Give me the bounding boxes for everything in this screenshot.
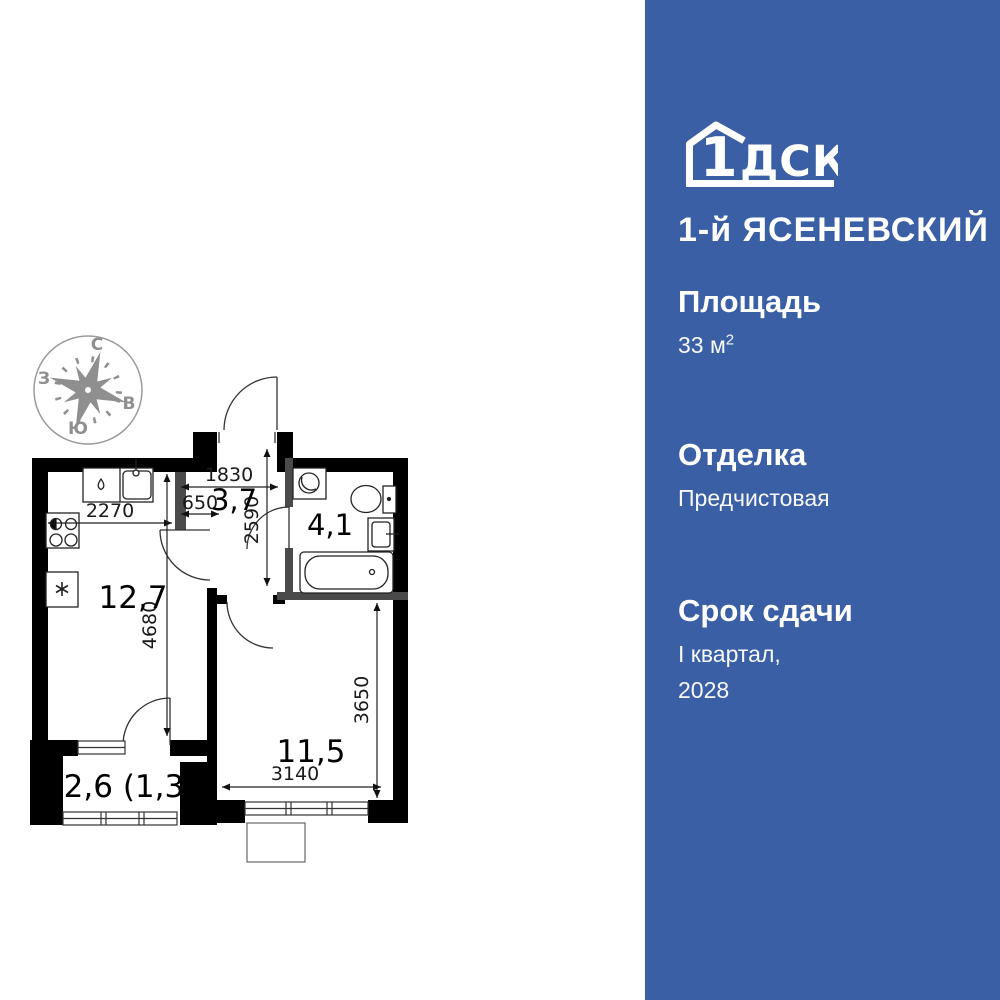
dim-room-depth: 3650 [351, 676, 373, 724]
balcony-top-window [78, 741, 125, 754]
room-label-kitchen-living: 12,7 [98, 580, 167, 616]
project-name: 1-й ЯСЕНЕВСКИЙ [678, 211, 989, 250]
entrance-door [219, 377, 277, 443]
dim-kitchen-width: 2270 [86, 500, 134, 522]
logo-letters: ДСК [740, 137, 838, 187]
fridge-icon [46, 572, 78, 607]
sink-icon [368, 518, 399, 551]
stove-icon [46, 513, 79, 548]
room-label-bedroom: 11,5 [276, 734, 345, 770]
stat-area-label: Площадь [678, 285, 821, 319]
logo-underline [686, 180, 834, 187]
balcony-door [123, 698, 170, 745]
room-label-bathroom: 4,1 [307, 508, 353, 542]
compass-west: З [38, 369, 50, 389]
balcony-glazing [63, 812, 177, 825]
stat-deadline-line1: I квартал, [678, 637, 853, 673]
toilet-icon [351, 486, 396, 514]
room-label-hallway: 3,7 [211, 483, 257, 517]
stat-area: Площадь 33 м2 [678, 285, 821, 364]
info-sidebar: 1 ДСК 1-й ЯСЕНЕВСКИЙ Площадь 33 м2 Отдел… [645, 0, 1000, 1000]
washing-machine-icon [293, 468, 326, 499]
facade-basket [247, 823, 305, 862]
compass-north: С [91, 335, 103, 355]
stat-area-number: 33 м [678, 332, 726, 358]
stat-finishing-label: Отделка [678, 438, 830, 472]
room-door [227, 602, 273, 648]
stat-area-value: 33 м2 [678, 328, 821, 364]
apartment-card: С В Ю З [0, 0, 1000, 1000]
stat-area-sup: 2 [726, 331, 734, 348]
developer-logo: 1 ДСК 1-й ЯСЕНЕВСКИЙ [678, 118, 989, 250]
stat-deadline-line2: 2028 [678, 673, 853, 709]
bathtub-icon [300, 552, 393, 593]
logo-number: 1 [700, 126, 738, 189]
stat-finishing: Отделка Предчистовая [678, 438, 830, 517]
compass-south: Ю [68, 419, 88, 439]
stat-deadline: Срок сдачи I квартал, 2028 [678, 594, 853, 708]
room-label-balcony: 2,6 (1,3) [64, 769, 197, 805]
compass-east: В [123, 394, 136, 414]
compass-rose: С В Ю З [34, 335, 142, 444]
stat-finishing-value: Предчистовая [678, 481, 830, 517]
floor-plan: С В Ю З [0, 0, 645, 1000]
stat-deadline-label: Срок сдачи [678, 594, 853, 628]
stat-deadline-value: I квартал, 2028 [678, 637, 853, 708]
bedroom-window [245, 802, 368, 815]
